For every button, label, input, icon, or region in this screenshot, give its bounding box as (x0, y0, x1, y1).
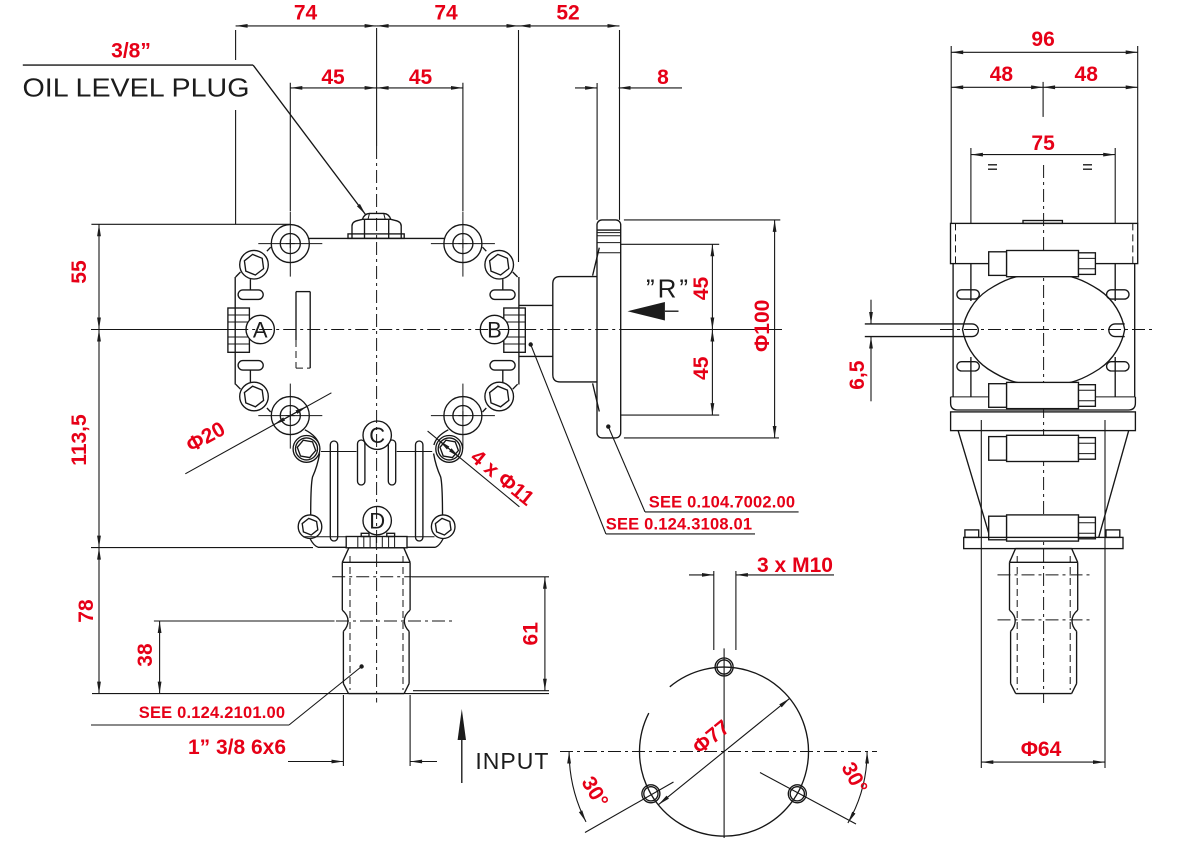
svg-text:INPUT: INPUT (475, 748, 549, 774)
svg-text:1” 3/8 6x6: 1” 3/8 6x6 (188, 736, 286, 759)
svg-text:D: D (369, 508, 385, 533)
svg-text:48: 48 (990, 63, 1014, 86)
svg-text:75: 75 (1031, 132, 1055, 155)
svg-text:78: 78 (75, 599, 98, 623)
svg-text:55: 55 (68, 260, 91, 284)
svg-text:96: 96 (1031, 28, 1054, 51)
svg-text:38: 38 (134, 643, 157, 667)
svg-text:3/8”: 3/8” (111, 40, 151, 63)
svg-text:45: 45 (321, 66, 345, 89)
svg-text:OIL LEVEL PLUG: OIL LEVEL PLUG (23, 73, 250, 103)
svg-text:45: 45 (690, 356, 713, 380)
svg-text:Φ100: Φ100 (751, 300, 774, 352)
svg-text:45: 45 (690, 277, 713, 301)
svg-text:3 x M10: 3 x M10 (757, 554, 833, 577)
svg-text:SEE 0.124.2101.00: SEE 0.124.2101.00 (139, 704, 286, 722)
svg-text:74: 74 (294, 2, 318, 25)
svg-text:48: 48 (1075, 63, 1099, 86)
svg-text:6,5: 6,5 (846, 360, 869, 390)
svg-text:Φ64: Φ64 (1021, 738, 1062, 761)
svg-text:74: 74 (434, 2, 458, 25)
svg-text:8: 8 (657, 66, 669, 89)
svg-text:52: 52 (556, 2, 579, 25)
svg-text:C: C (369, 423, 385, 448)
svg-text:SEE 0.124.3108.01: SEE 0.124.3108.01 (606, 516, 753, 534)
svg-text:113,5: 113,5 (68, 414, 91, 466)
svg-text:45: 45 (409, 66, 433, 89)
svg-text:”R”: ”R” (646, 274, 691, 304)
svg-text:61: 61 (520, 622, 543, 646)
svg-text:SEE 0.104.7002.00: SEE 0.104.7002.00 (649, 494, 796, 512)
